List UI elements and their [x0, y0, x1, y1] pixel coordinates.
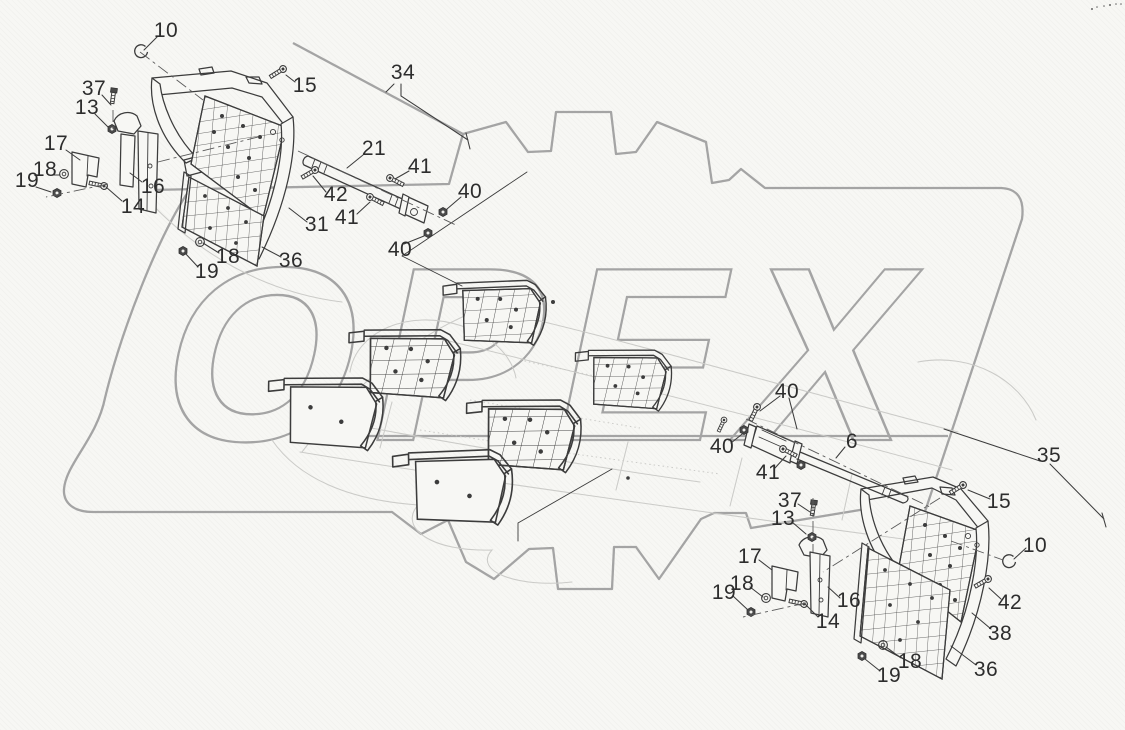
callout-34-2: 34: [391, 61, 415, 85]
callout-21-10: 21: [362, 137, 386, 161]
callout-19-38: 19: [877, 664, 901, 688]
callout-15-1: 15: [293, 74, 317, 98]
callout-42-12: 42: [324, 183, 348, 207]
callout-13-27: 13: [771, 507, 795, 531]
callout-14-9: 14: [121, 195, 145, 219]
parts-diagram-page: OPEX: [0, 0, 1125, 730]
callout-17-5: 17: [44, 132, 68, 156]
callout-35-24: 35: [1037, 444, 1061, 468]
callout-13-4: 13: [75, 96, 99, 120]
callout-41-11: 41: [408, 155, 432, 179]
callout-40-13: 40: [458, 180, 482, 204]
callout-36-36: 36: [974, 658, 998, 682]
bolt-icon: [109, 88, 117, 104]
callout-40-15: 40: [388, 238, 412, 262]
callout-41-14: 41: [335, 206, 359, 230]
callout-10-33: 10: [1023, 534, 1047, 558]
washer-icon: [60, 170, 69, 179]
callout-19-7: 19: [15, 169, 39, 193]
callout-10-0: 10: [154, 19, 178, 43]
nut-icon: [797, 460, 805, 469]
corner-specks: [1091, 3, 1122, 10]
callout-40-21: 40: [710, 435, 734, 459]
callout-41-22: 41: [756, 461, 780, 485]
callout-40-20: 40: [775, 380, 799, 404]
nut-icon: [424, 228, 432, 237]
callout-18-37: 18: [898, 650, 922, 674]
callout-31-16: 31: [305, 213, 329, 237]
callout-6-23: 6: [846, 430, 858, 454]
circlip-icon: [1001, 553, 1016, 569]
callout-14-32: 14: [816, 610, 840, 634]
callout-17-28: 17: [738, 545, 762, 569]
callout-18-18: 18: [216, 245, 240, 269]
bolt-icon: [268, 64, 287, 80]
callout-19-30: 19: [712, 581, 736, 605]
callout-19-19: 19: [195, 260, 219, 284]
bolt-icon: [365, 192, 384, 206]
callout-36-17: 36: [279, 249, 303, 273]
washer-icon: [762, 594, 771, 603]
callout-38-35: 38: [988, 622, 1012, 646]
callout-16-31: 16: [837, 589, 861, 613]
diagram-linework: OPEX: [0, 0, 1125, 730]
callout-42-34: 42: [998, 591, 1022, 615]
nut-icon: [108, 124, 116, 133]
nut-icon: [439, 207, 447, 216]
callout-15-25: 15: [987, 490, 1011, 514]
nut-icon: [53, 188, 61, 197]
nut-icon: [808, 532, 816, 541]
